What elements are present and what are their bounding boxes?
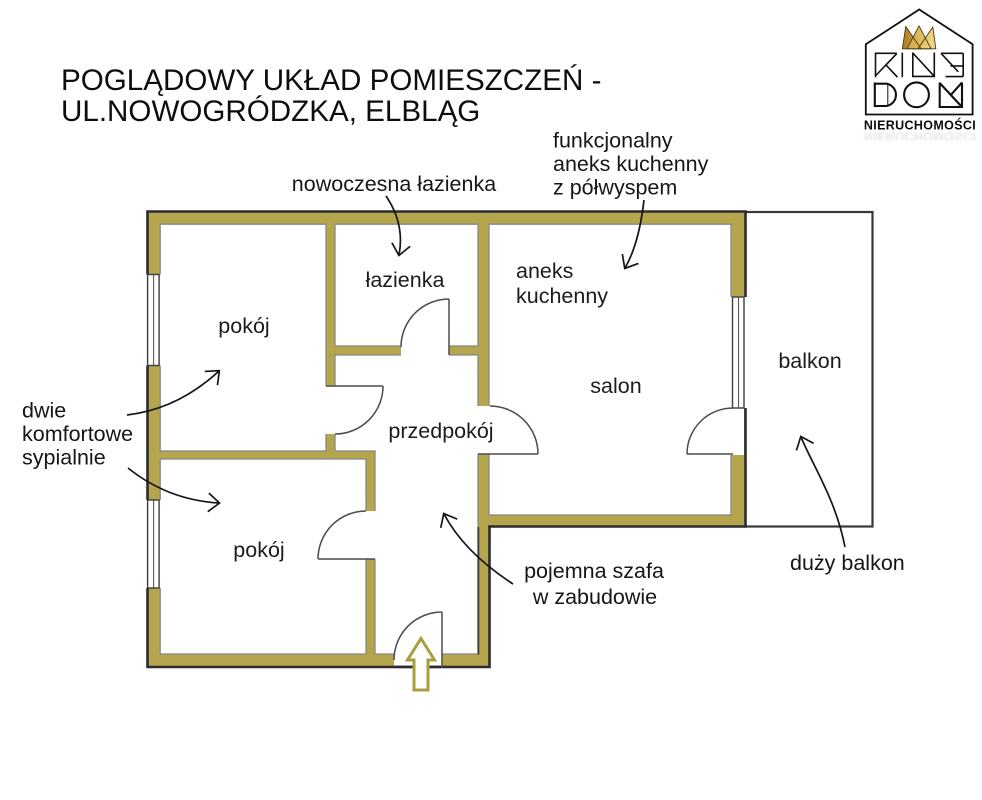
svg-text:funkcjonalny: funkcjonalny <box>553 129 673 153</box>
svg-text:pojemna szafa: pojemna szafa <box>524 559 664 583</box>
svg-text:przedpokój: przedpokój <box>388 419 493 443</box>
svg-text:dwie: dwie <box>22 399 66 423</box>
svg-text:komfortowe: komfortowe <box>22 422 133 446</box>
svg-text:kuchenny: kuchenny <box>516 284 608 308</box>
svg-text:sypialnie: sypialnie <box>22 446 106 470</box>
svg-text:łazienka: łazienka <box>366 268 445 292</box>
svg-text:aneks kuchenny: aneks kuchenny <box>553 152 709 176</box>
svg-text:nowoczesna łazienka: nowoczesna łazienka <box>292 172 496 196</box>
svg-text:NIERUCHOMOŚCI: NIERUCHOMOŚCI <box>864 129 976 144</box>
svg-text:salon: salon <box>590 374 641 398</box>
svg-text:duży balkon: duży balkon <box>790 551 905 575</box>
svg-text:w zabudowie: w zabudowie <box>532 585 657 609</box>
svg-text:UL.NOWOGRÓDZKA, ELBLĄG: UL.NOWOGRÓDZKA, ELBLĄG <box>61 95 480 128</box>
svg-text:pokój: pokój <box>233 538 284 562</box>
svg-text:POGLĄDOWY UKŁAD POMIESZCZEŃ -: POGLĄDOWY UKŁAD POMIESZCZEŃ - <box>61 64 601 97</box>
svg-text:balkon: balkon <box>778 349 841 373</box>
svg-text:aneks: aneks <box>516 259 573 283</box>
svg-text:pokój: pokój <box>218 314 269 338</box>
svg-text:z półwyspem: z półwyspem <box>553 176 677 200</box>
